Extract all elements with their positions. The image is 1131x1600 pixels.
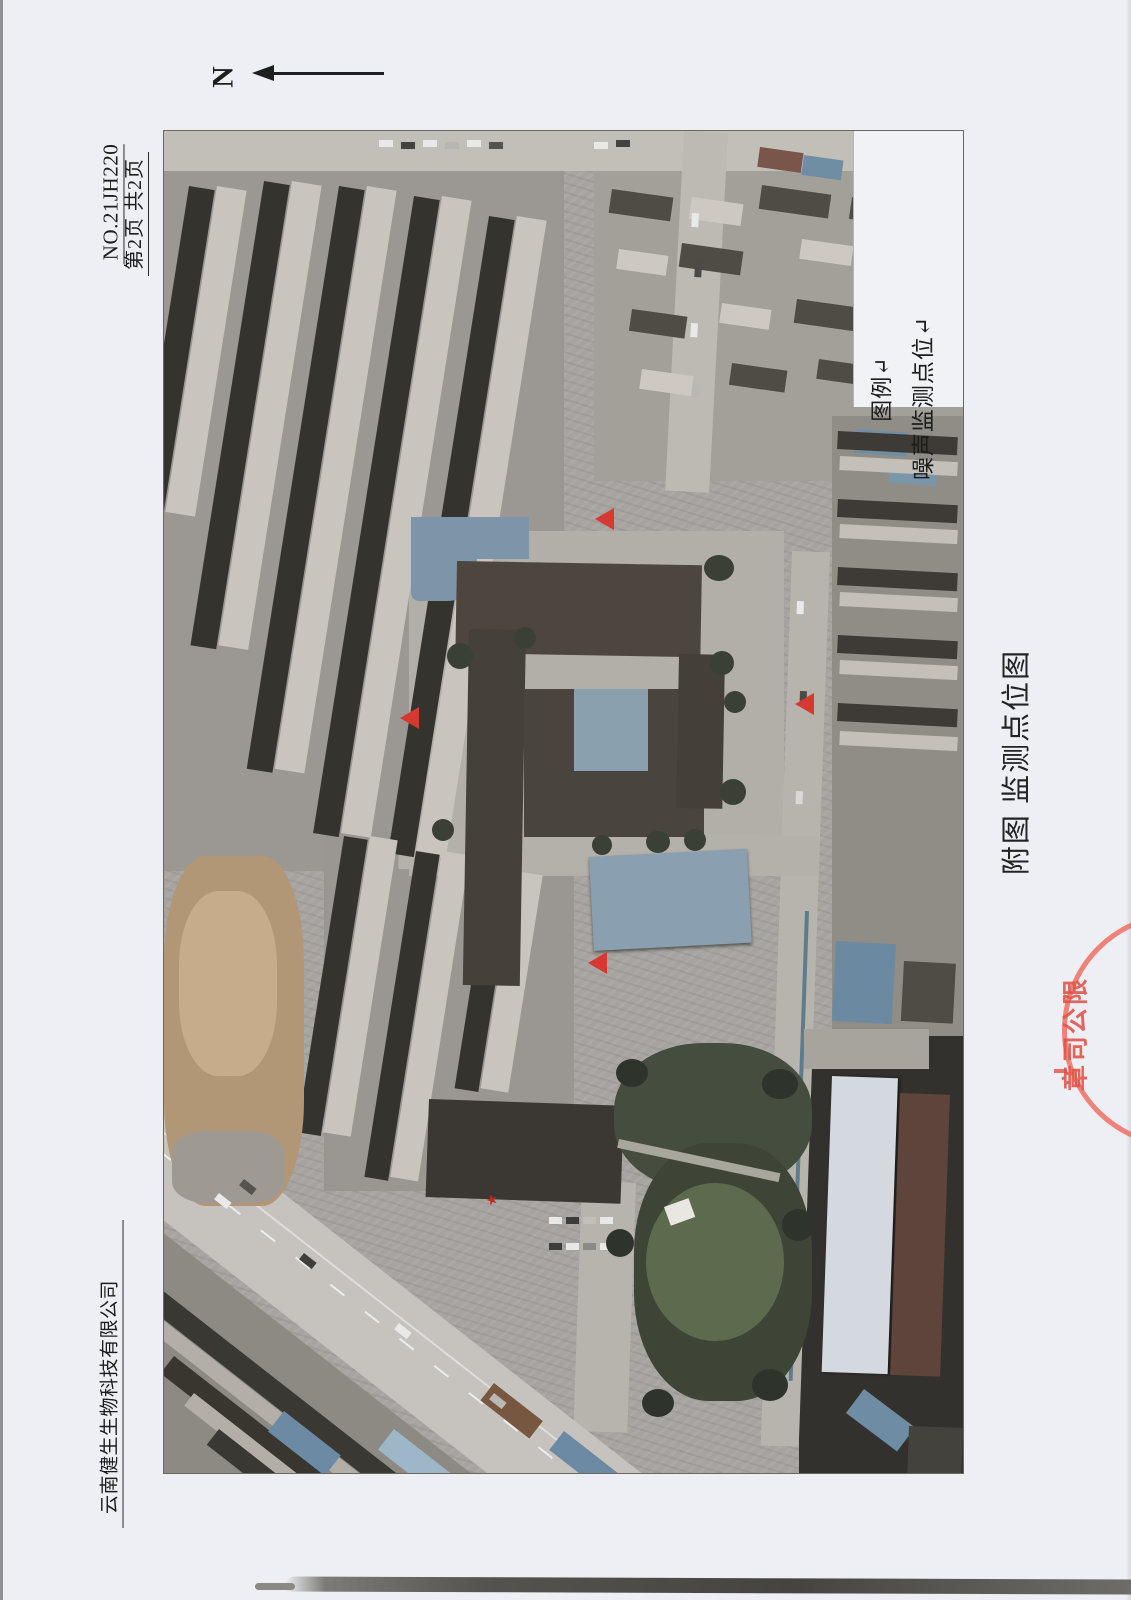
- map-feature: [379, 140, 393, 147]
- noise-monitor-marker: [588, 952, 607, 974]
- map-feature: [574, 689, 648, 771]
- map-feature: [724, 691, 746, 713]
- map-feature: [589, 849, 752, 951]
- scan-edge-right: [1126, 0, 1131, 1600]
- map-feature: [646, 831, 670, 853]
- scanned-report-page: NO.21JH220 第2页 共2页 云南健生生物科技有限公司 附图 监测点位图…: [0, 0, 1131, 1600]
- map-feature: [583, 1243, 596, 1250]
- map-feature: [447, 643, 473, 669]
- legend-box: 图例↵ 噪声监测点位↵: [853, 131, 964, 407]
- map-feature: [426, 1099, 624, 1204]
- stamp-character: 限: [1056, 979, 1093, 1005]
- map-feature: [463, 629, 526, 986]
- map-feature: [690, 323, 698, 337]
- report-number: NO.21JH220: [99, 144, 124, 264]
- map-feature: [467, 140, 481, 147]
- map-feature: [684, 829, 706, 851]
- map-feature: [606, 1229, 634, 1257]
- map-feature: [616, 140, 630, 147]
- map-feature: [566, 1243, 579, 1250]
- map-feature: [432, 819, 454, 841]
- map-feature: [890, 1093, 950, 1377]
- map-feature: [583, 1217, 596, 1224]
- map-feature: [762, 1069, 798, 1099]
- company-name: 云南健生生物科技有限公司: [101, 1220, 124, 1528]
- map-feature: [445, 142, 459, 149]
- map-feature: [796, 791, 803, 804]
- map-feature: [401, 142, 415, 149]
- map-feature: [172, 1131, 284, 1203]
- map-feature: [549, 1217, 562, 1224]
- map-feature: [752, 1369, 788, 1401]
- page-indicator: 第2页 共2页: [125, 152, 149, 276]
- map-feature: [423, 140, 437, 147]
- map-feature: [514, 627, 536, 649]
- company-stamp-mark: [1054, 1069, 1067, 1073]
- map-feature: [616, 1059, 648, 1087]
- stamp-character: 公: [1056, 1008, 1093, 1034]
- map-feature: [704, 555, 734, 581]
- map-feature: [901, 961, 956, 1024]
- map-feature: [489, 142, 503, 149]
- map-feature: [592, 835, 612, 855]
- map-feature: [549, 1243, 562, 1250]
- map-feature: [804, 1029, 929, 1069]
- figure-caption: 附图 监测点位图: [1002, 649, 1032, 875]
- north-label: N: [207, 66, 239, 88]
- map-feature: [782, 1209, 814, 1241]
- map-feature: [164, 131, 963, 171]
- map-feature: [797, 601, 804, 614]
- map-feature: [832, 941, 896, 1024]
- map-feature: [907, 1426, 963, 1474]
- scan-edge-bottom-blob: [255, 1583, 295, 1590]
- map-feature: [694, 263, 702, 277]
- noise-monitor-marker: [795, 693, 814, 715]
- legend-title: 图例↵: [870, 356, 893, 421]
- map-feature: [691, 213, 699, 227]
- map-feature: [642, 1389, 674, 1417]
- noise-monitor-marker: [400, 707, 419, 729]
- site-star-marker: ★: [486, 1194, 500, 1207]
- scan-edge-bottom: [285, 1577, 1131, 1595]
- stamp-character: 司: [1056, 1036, 1093, 1062]
- map-feature: [720, 779, 746, 805]
- north-arrow-icon: [252, 65, 274, 81]
- map-feature: [676, 654, 725, 809]
- legend-item-label: 噪声监测点位↵: [912, 316, 936, 480]
- map-feature: [600, 1217, 613, 1224]
- map-feature: [693, 383, 701, 397]
- aerial-photo: 图例↵ 噪声监测点位↵: [163, 130, 964, 1474]
- map-feature: [566, 1217, 579, 1224]
- north-arrow-line: [272, 72, 384, 75]
- noise-monitor-marker: [595, 508, 614, 530]
- map-feature: [710, 651, 734, 675]
- map-feature: [594, 142, 608, 149]
- map-feature: [822, 1076, 898, 1374]
- map-feature: [179, 891, 277, 1076]
- scan-edge-left: [0, 0, 3, 1600]
